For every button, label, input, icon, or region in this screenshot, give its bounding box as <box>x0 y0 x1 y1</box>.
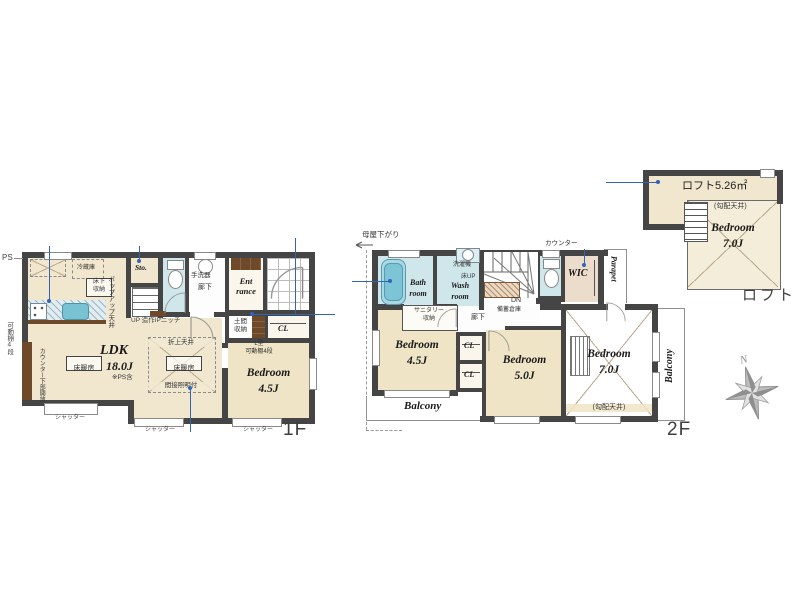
loft-vent <box>760 169 775 178</box>
leader-line <box>606 182 658 183</box>
loft-title: ロフト <box>742 287 796 305</box>
slope-ceiling-loft-label: (勾配天井) <box>714 203 747 211</box>
loft-area-label: ロフト5.26㎡ <box>682 180 747 193</box>
wall <box>643 170 649 230</box>
floor-loft <box>649 200 687 224</box>
leader-dot <box>656 180 660 184</box>
loft-bedroom-name: Bedroom <box>687 220 779 236</box>
compass-rose: N <box>712 348 792 430</box>
loft-plan: ロフト5.26㎡ (勾配天井) Bedroom 7.0J ロフト <box>0 0 800 600</box>
wall <box>777 170 783 204</box>
compass-n-label: N <box>738 353 750 367</box>
wall <box>643 224 689 230</box>
loft-bedroom-size: 7.0J <box>687 236 779 252</box>
loft-bedroom-label: Bedroom 7.0J <box>687 220 779 252</box>
floorplan-canvas: 冷蔵庫 床下 収納 ポップアップ天井 Sto. UP 造作IPニッチ 手洗器 廊… <box>0 0 800 600</box>
